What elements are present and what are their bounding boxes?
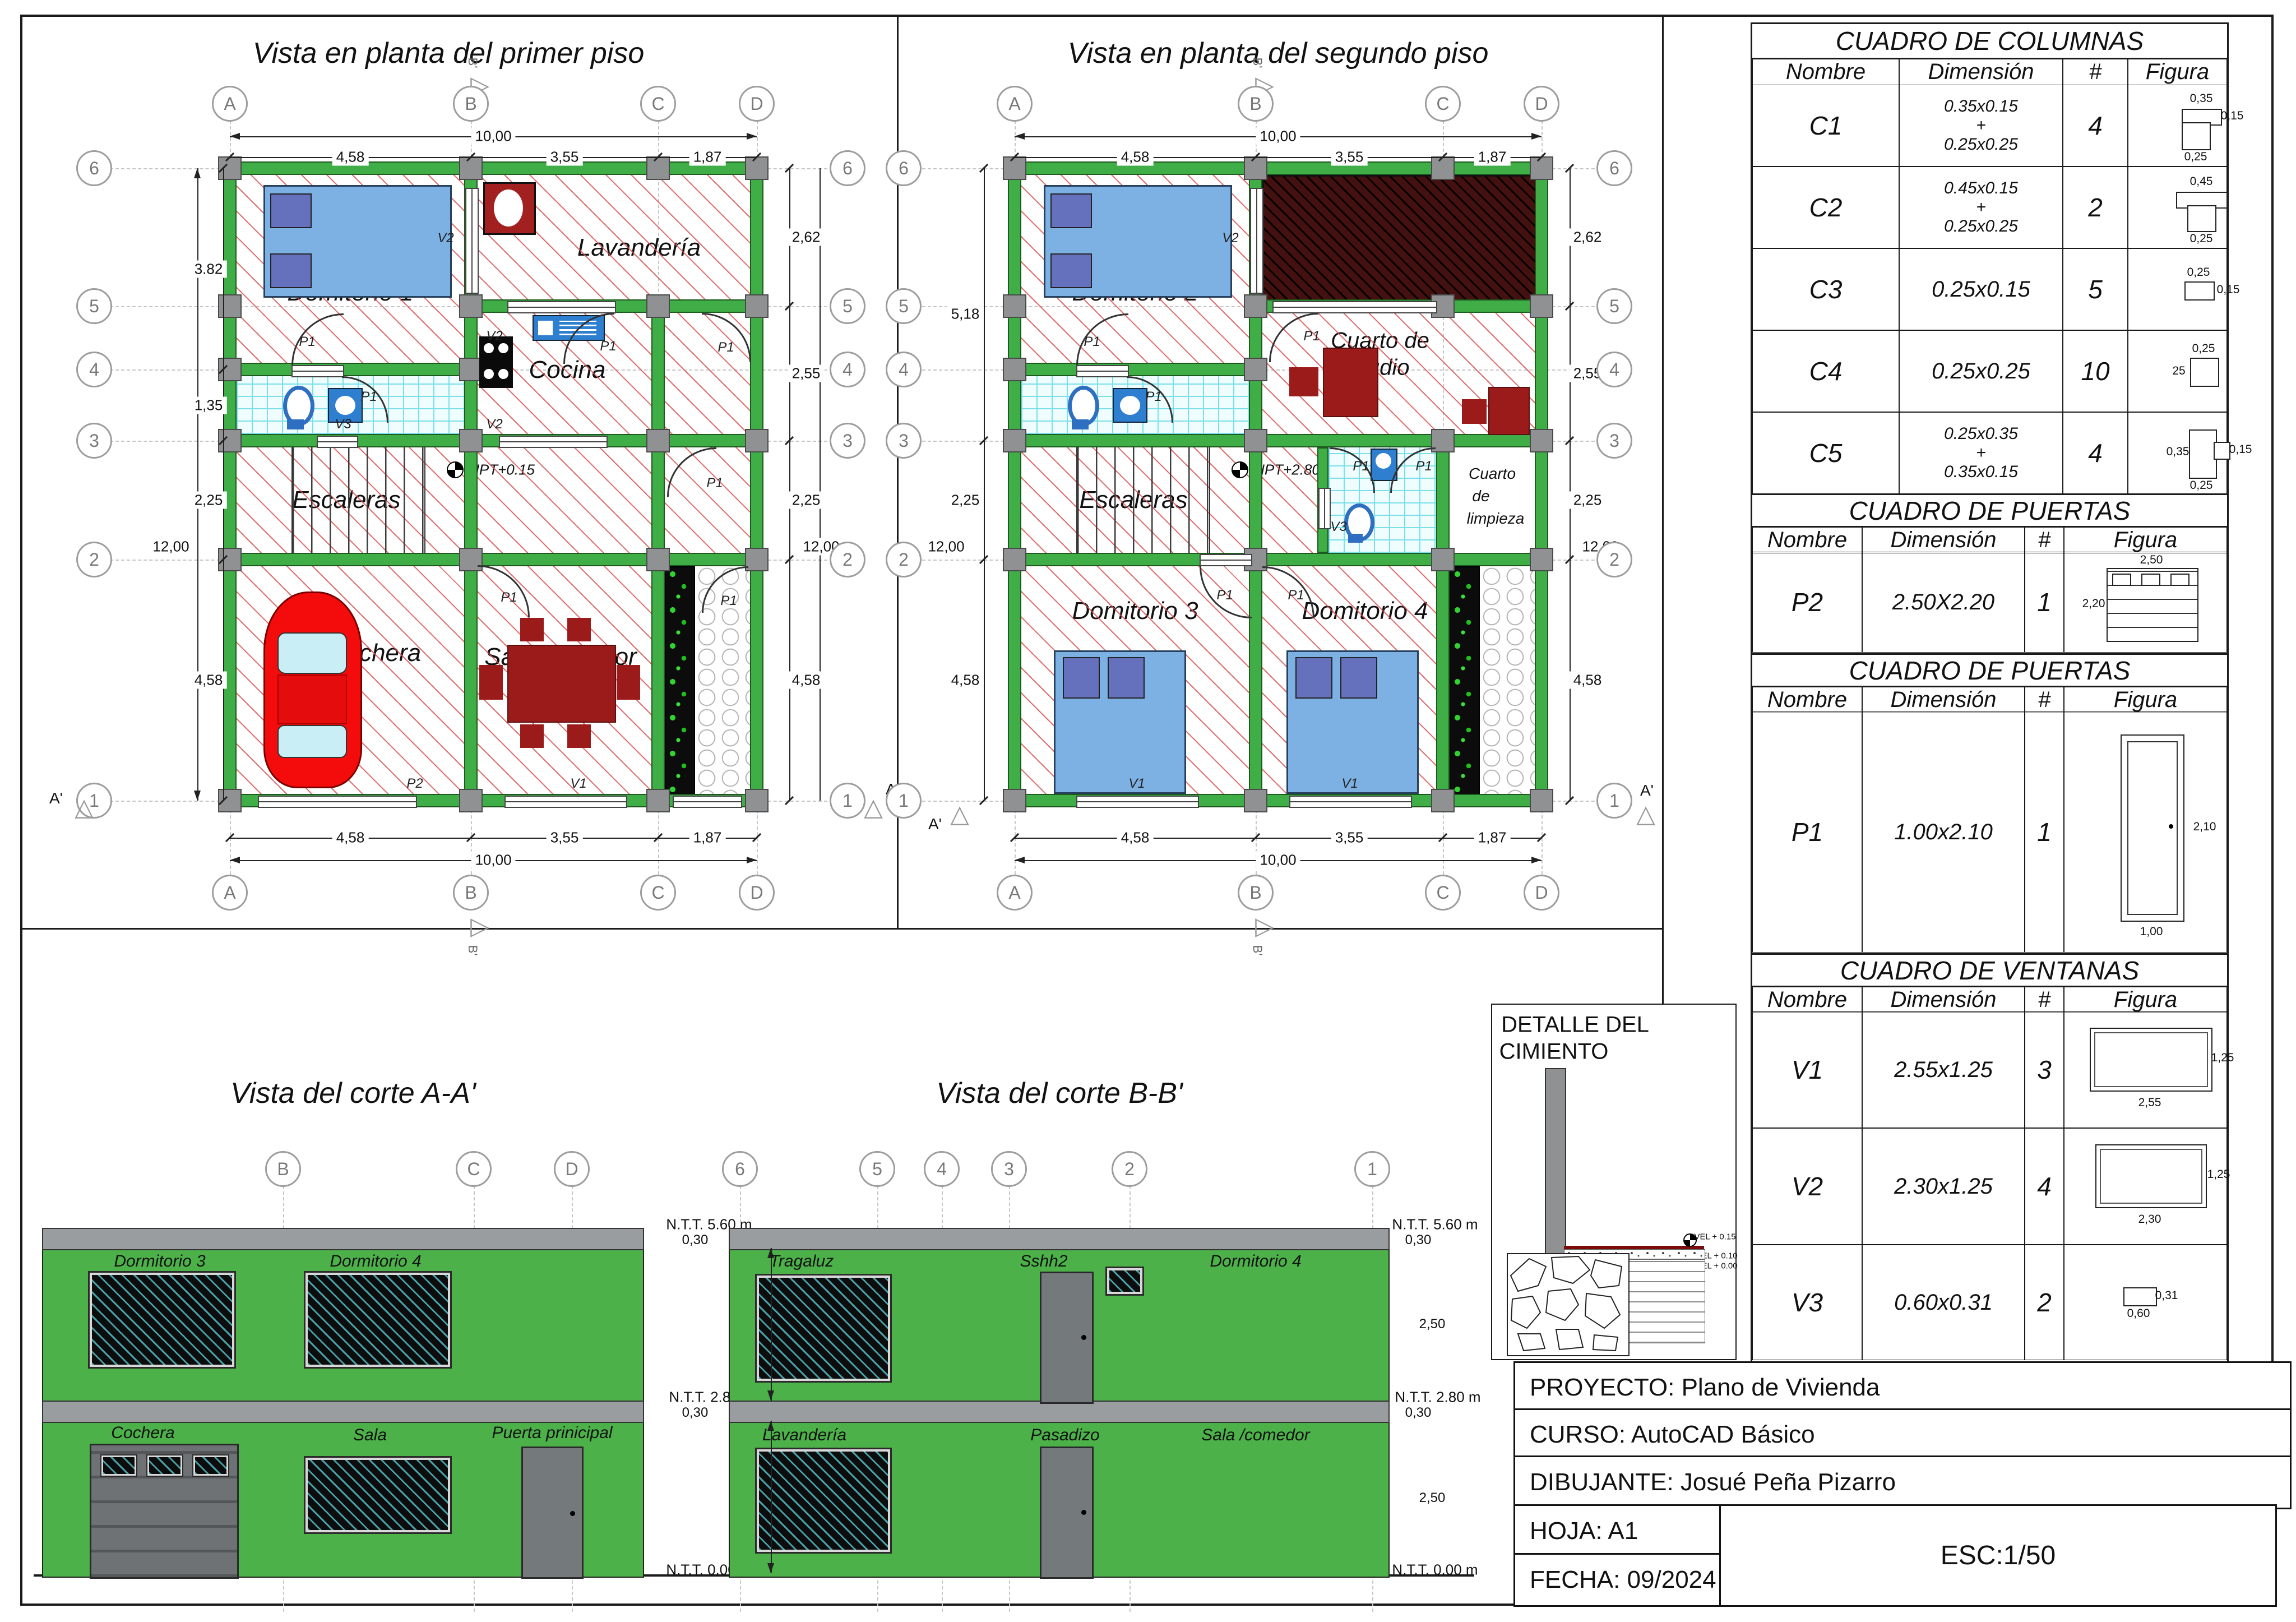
grid-bubble: C (1425, 875, 1461, 911)
grid-bubble: 3 (991, 1151, 1027, 1187)
col-header: Dimensión (1862, 687, 2025, 713)
col-header: Figura (2128, 59, 2227, 85)
planter-strip (1450, 566, 1480, 796)
dim-label: 1,87 (689, 149, 726, 166)
dim-label: 4,58 (788, 672, 825, 689)
tag-p1: P1 (1216, 588, 1233, 603)
fig-dim: 0,35 (2167, 445, 2189, 459)
cell-dim: 0.35x0.15 (1944, 463, 2018, 482)
grid-bubble: B (1238, 875, 1274, 911)
column-figure: 0,45 0,25 (2128, 167, 2226, 248)
dim-label: 12,00 (149, 538, 193, 556)
section-cut-label: A' (49, 789, 63, 807)
section-room-label: Sala /comedor (1201, 1426, 1309, 1445)
col-header: Dimensión (1862, 527, 2025, 553)
dim-label: 2,25 (947, 492, 984, 509)
titleblock-fecha: FECHA: 09/2024 (1513, 1553, 1739, 1607)
cell-plus: + (1976, 116, 1986, 135)
cell-name: V3 (1752, 1245, 1862, 1360)
window-v1 (504, 796, 627, 808)
chair (617, 665, 640, 700)
grid-bubble: 6 (830, 150, 865, 186)
section-cut-label: B' (465, 945, 480, 956)
grid-bubble: A (212, 86, 248, 122)
grid-bubble: C (640, 86, 676, 122)
tag-p1: P1 (1303, 329, 1320, 344)
dim-label: 1,87 (1474, 829, 1511, 847)
col-header: Nombre (1752, 687, 1862, 713)
door-figure: 2,50 2,20 (2064, 552, 2226, 652)
detail-stone-foundation (1507, 1253, 1630, 1356)
grid-bubble: 6 (76, 150, 112, 186)
cell-dim: 0.45x0.15 (1944, 179, 2018, 198)
cell-dim: 2.50X2.20 (1892, 590, 1994, 615)
section-cut-icon: △ (75, 793, 94, 822)
panel-divider-horizontal (22, 928, 1664, 930)
chair (1289, 367, 1318, 396)
tag-p1: P1 (717, 340, 734, 355)
grid-bubble: D (739, 86, 775, 122)
cell-name: C1 (1752, 85, 1899, 167)
col-header: Nombre (1752, 987, 1862, 1013)
level-label: N.T.T. 5.60 m (1392, 1216, 1478, 1233)
dim-label: 2,62 (1570, 229, 1606, 246)
pillow (1340, 657, 1377, 699)
section-cut-icon: △ (950, 800, 969, 829)
fig-dim: 0,45 (2190, 175, 2213, 188)
col-header: Figura (2064, 687, 2227, 713)
cell-dim: 0.25x0.25 (1944, 217, 2018, 236)
titleblock-text: DIBUJANTE: Josué Peña Pizarro (1530, 1468, 1896, 1496)
tag-p1: P1 (706, 475, 723, 491)
cell-dim: 0.35x0.15 (1944, 97, 2018, 116)
detalle-title: CIMIENTO (1499, 1039, 1609, 1065)
grid-bubble: 2 (1112, 1151, 1147, 1187)
tag-p1: P1 (1415, 459, 1432, 474)
chair (567, 618, 591, 641)
chair (1462, 399, 1487, 424)
dim-label: 1,87 (1474, 149, 1511, 166)
car (263, 592, 362, 788)
fig-dim: 0,35 (2190, 92, 2213, 105)
cell-plus: + (1976, 198, 1986, 217)
col-header: # (2025, 527, 2064, 553)
col-header: Figura (2064, 527, 2227, 553)
tag-p1: P1 (1145, 389, 1161, 405)
cell-name: C3 (1752, 248, 1899, 330)
level-label: 2,50 (1419, 1490, 1446, 1506)
dim-label: 4,58 (947, 672, 984, 689)
dim-label: 4,58 (332, 149, 369, 166)
dim-label: 3,55 (1331, 149, 1368, 166)
cell-name: V1 (1752, 1011, 1862, 1128)
room-label: de (1472, 487, 1489, 505)
dim-label: 12,00 (924, 538, 968, 556)
grid-bubble: 4 (924, 1151, 960, 1187)
grid-bubble: 6 (886, 150, 922, 186)
level-label: 0,30 (1405, 1232, 1432, 1248)
fig-dim: 2,50 (2140, 553, 2163, 567)
grid-bubble: B (1238, 86, 1274, 122)
table-columnas: CUADRO DE COLUMNAS Nombre Dimensión # Fi… (1751, 22, 2229, 497)
col-header: # (2025, 687, 2064, 713)
grid-bubble: 1 (1596, 783, 1632, 819)
grid-bubble: A (997, 86, 1033, 122)
cell-plus: + (1976, 443, 1986, 463)
table-title: CUADRO DE COLUMNAS (1752, 24, 2227, 59)
level-marker-icon (1683, 1233, 1697, 1247)
detail-column (1545, 1068, 1566, 1255)
col-header: Nombre (1752, 59, 1899, 85)
dim-label: 10,00 (471, 128, 515, 145)
opening (673, 796, 742, 808)
level-label: 0,30 (1405, 1405, 1432, 1421)
level-label: 2,50 (1419, 1316, 1446, 1332)
toilet-tank (1348, 534, 1363, 543)
cell-dim: 0.25x0.15 (1932, 277, 2030, 302)
window-v3 (1318, 488, 1331, 529)
dim-label: 5,18 (947, 306, 984, 323)
table-ventanas: CUADRO DE VENTANAS Nombre Dimensión # Fi… (1751, 953, 2229, 1363)
tag-v1: V1 (1341, 776, 1358, 792)
titleblock-text: ESC:1/50 (1941, 1540, 2056, 1571)
fig-dim: 0,25 (2184, 150, 2207, 164)
grid-bubble: 5 (1596, 288, 1632, 324)
dim-label: 1,87 (689, 829, 726, 847)
dim-label: 2,55 (788, 365, 825, 382)
grid-bubble: 2 (830, 542, 865, 577)
tag-v3: V3 (335, 417, 351, 432)
pillow (1050, 193, 1092, 228)
door-figure: 2,10 1,00 (2064, 712, 2226, 952)
column-figure: 0,35 0,15 0,25 (2128, 85, 2226, 166)
tag-v2: V2 (486, 329, 502, 344)
pillow (1063, 657, 1100, 699)
cell-count: 4 (2063, 412, 2128, 494)
fig-dim: 2,10 (2193, 820, 2216, 834)
dim-label: 2,25 (788, 492, 825, 509)
window-v3 (317, 436, 358, 448)
grid-bubble: 4 (886, 352, 922, 387)
fig-dim: 1,25 (2207, 1168, 2230, 1181)
section-cut-icon: △ (864, 793, 883, 822)
cell-name: C2 (1752, 167, 1899, 248)
grid-bubble: 6 (722, 1151, 758, 1187)
cell-dim: 0.60x0.31 (1894, 1290, 1993, 1315)
tag-v2: V2 (486, 417, 502, 432)
pillow (1295, 657, 1332, 699)
window-v1 (1289, 796, 1412, 808)
room-label: limpieza (1467, 510, 1525, 528)
fig-dim: 0,25 (2190, 479, 2213, 492)
door-gap (291, 365, 344, 377)
section-window (757, 1276, 890, 1381)
grid-bubble: B (265, 1151, 301, 1187)
tag-p1: P1 (1288, 588, 1304, 603)
cell-dim: 2.30x1.25 (1894, 1174, 1993, 1199)
level-marker-icon (1232, 461, 1248, 478)
garage-door (90, 1444, 239, 1579)
grid-bubble: D (739, 875, 775, 911)
fig-dim: 1,00 (2140, 925, 2163, 939)
titleblock-proyecto: PROYECTO: Plano de Vivienda (1513, 1361, 2292, 1413)
fig-dim: 0,25 (2187, 266, 2210, 279)
section-window (305, 1458, 450, 1532)
column-figure: 0,25 25 (2128, 331, 2226, 412)
tag-p1: P1 (299, 334, 315, 350)
dim-label: 10,00 (471, 852, 515, 869)
grid-bubble: 3 (830, 423, 865, 459)
grid-bubble: 3 (1596, 423, 1632, 459)
cell-name: P2 (1752, 552, 1862, 653)
level-label: N.T.T. 2.80 m (1395, 1389, 1480, 1406)
fig-dim: 0,15 (2221, 109, 2244, 123)
cell-count: 2 (2025, 1245, 2064, 1360)
grid-bubble: 3 (76, 423, 112, 459)
grid-bubble: A (997, 875, 1033, 911)
garage-door-p2 (258, 796, 417, 808)
table-title: CUADRO DE VENTANAS (1752, 955, 2227, 987)
door-gap (1076, 365, 1129, 377)
section-cut-label: A' (928, 815, 942, 833)
section-room-label: Dormitorio 4 (330, 1252, 421, 1271)
pillow (1050, 253, 1092, 288)
cell-count: 5 (2063, 248, 2128, 330)
section-window (90, 1273, 234, 1367)
toilet-tank (287, 419, 304, 429)
cell-count: 4 (2025, 1128, 2064, 1245)
cell-name: V2 (1752, 1128, 1862, 1245)
dim-label: 2,62 (788, 229, 825, 246)
tag-v1: V1 (570, 776, 586, 792)
column-figure: 0,25 0,15 (2128, 249, 2226, 330)
grid-bubble: 4 (76, 352, 112, 387)
dim-label: 4,58 (1117, 149, 1154, 166)
detail-floor-finish (1564, 1246, 1704, 1249)
planter-strip (665, 566, 695, 796)
col-header: Dimensión (1862, 987, 2025, 1013)
cell-count: 4 (2063, 85, 2128, 167)
dim-label: 2,25 (191, 492, 227, 509)
dining-table (507, 645, 616, 723)
dim-label: 10,00 (1256, 128, 1300, 145)
grid-bubble: C (640, 875, 676, 911)
dim-label: 3,55 (547, 149, 583, 166)
cell-count: 3 (2025, 1011, 2064, 1128)
cell-count: 1 (2025, 711, 2064, 953)
col-header: # (2063, 59, 2128, 85)
section-room-label: Lavandería (762, 1426, 846, 1445)
grid-bubble: 5 (886, 288, 922, 324)
section-room-label: Tragaluz (770, 1252, 834, 1271)
grid-bubble: B (453, 86, 489, 122)
detalle-title: DETALLE DEL (1501, 1013, 1649, 1038)
fig-dim: 0,25 (2192, 342, 2215, 355)
titleblock-hoja: HOJA: A1 (1513, 1504, 1739, 1558)
grid-bubble: 4 (1596, 352, 1632, 387)
col-header: Dimensión (1899, 59, 2063, 85)
chair (520, 618, 544, 641)
grid-bubble: 1 (886, 783, 922, 819)
grid-bubble: C (456, 1151, 492, 1187)
window-v2 (1250, 188, 1263, 294)
titleblock-dibujante: DIBUJANTE: Josué Peña Pizarro (1513, 1455, 2292, 1509)
cell-dim: 0.25x0.35 (1944, 424, 2018, 443)
tag-v3: V3 (1330, 519, 1346, 535)
section-cut-icon: △ (1636, 800, 1655, 829)
col-header: Figura (2064, 987, 2227, 1013)
fig-dim: 2,30 (2138, 1213, 2161, 1226)
grid-bubble: 5 (859, 1151, 895, 1187)
cell-dim: 2.55x1.25 (1894, 1057, 1993, 1083)
level-marker-icon (447, 461, 464, 478)
section-room-label: Puerta prinicipal (492, 1424, 612, 1443)
plan2-title: Vista en planta del segundo piso (1068, 36, 1489, 70)
dim-label: 4,58 (1117, 829, 1154, 847)
drawing-sheet: Vista en planta del primer piso ▷ B' ▷ B… (0, 0, 2296, 1622)
grid-bubble: B (453, 875, 489, 911)
section-door (1040, 1272, 1094, 1404)
corteA-title: Vista del corte A-A' (230, 1076, 476, 1110)
window-v1 (1076, 796, 1199, 808)
titleblock-curso: CURSO: AutoCAD Básico (1513, 1408, 2292, 1461)
level-label: 0,30 (682, 1232, 709, 1248)
stairs-treads (1076, 447, 1210, 553)
tragaluz-void (1262, 175, 1538, 303)
dim-label: 3.82 (191, 261, 227, 278)
window-v2 (499, 436, 608, 448)
room-comedor-hall (478, 447, 651, 553)
fig-dim: 0,60 (2127, 1307, 2150, 1320)
titleblock-text: CURSO: AutoCAD Básico (1530, 1421, 1815, 1449)
window-figure: 0,31 0,60 (2064, 1245, 2226, 1360)
door-gap (1200, 554, 1252, 566)
grid-bubble: 2 (886, 542, 922, 577)
section-window (757, 1449, 890, 1552)
toilet-tank (1072, 419, 1089, 429)
section-room-label: Sala (353, 1426, 387, 1445)
section-room-label: Pasadizo (1030, 1426, 1099, 1445)
grid-bubble: 5 (76, 288, 112, 324)
cell-dim: 0.25x0.25 (1944, 135, 2018, 154)
corteB-title: Vista del corte B-B' (936, 1076, 1183, 1110)
window-figure: 1,25 2,30 (2064, 1129, 2226, 1244)
section-cut-label: B' (1250, 58, 1265, 68)
fig-dim: 2,55 (2138, 1096, 2161, 1110)
level-label: 0,30 (682, 1405, 709, 1421)
tag-p1: P1 (360, 389, 377, 405)
pillow (1108, 657, 1145, 699)
window-v2 (465, 188, 479, 294)
hall-strip (1262, 447, 1317, 553)
section-door (521, 1447, 584, 1579)
grid-bubble: D (1524, 86, 1559, 122)
window-figure: 1,25 2,55 (2064, 1012, 2226, 1127)
grid-bubble: 5 (830, 288, 865, 324)
tag-p1: P1 (1353, 459, 1369, 474)
section-room-label: Dormitorio 4 (1210, 1252, 1301, 1271)
washer (483, 182, 536, 235)
section-window-small (1107, 1268, 1142, 1294)
dim-label: 10,00 (1256, 852, 1300, 869)
fig-dim: 0,31 (2155, 1289, 2178, 1302)
desk (1488, 387, 1530, 435)
tag-v1: V1 (1128, 776, 1145, 792)
dim-label: 1,35 (191, 397, 227, 414)
plan1-title: Vista en planta del primer piso (253, 36, 645, 70)
table-puertas-p2: CUADRO DE PUERTAS Nombre Dimensión # Fig… (1751, 493, 2229, 657)
section-door (1040, 1447, 1094, 1579)
table-title: CUADRO DE PUERTAS (1752, 495, 2227, 527)
titleblock-text: FECHA: 09/2024 (1530, 1566, 1716, 1594)
section-cut-icon: ▷ (1255, 912, 1274, 941)
window-v2 (507, 301, 616, 313)
cell-name: C4 (1752, 330, 1899, 412)
tag-p1: P1 (501, 590, 517, 606)
grid-bubble: 6 (1596, 150, 1632, 186)
cell-dim: 1.00x2.10 (1894, 820, 1993, 845)
fig-dim: 0,15 (2217, 283, 2240, 297)
dim-label: 4,58 (1570, 672, 1606, 689)
section-cut-label: B' (1250, 945, 1265, 956)
dim-label: 2,25 (1570, 492, 1606, 509)
titleblock-text: PROYECTO: Plano de Vivienda (1530, 1374, 1880, 1402)
tag-v2: V2 (1222, 230, 1238, 246)
col-header: # (2025, 987, 2064, 1013)
cell-count: 2 (2063, 167, 2128, 248)
grid-bubble: 3 (886, 423, 922, 459)
cell-dim: 0.25x0.25 (1932, 359, 2030, 384)
chair (479, 665, 503, 700)
tag-p1: P1 (720, 593, 737, 609)
cell-count: 10 (2063, 330, 2128, 412)
section-room-label: Sshh2 (1020, 1252, 1067, 1271)
titleblock-text: HOJA: A1 (1530, 1517, 1638, 1545)
fig-dim: 25 (2172, 364, 2185, 378)
pillow (270, 193, 312, 228)
fig-dim: 0,25 (2190, 232, 2213, 246)
panel-divider-vertical-2 (1662, 17, 1664, 1005)
section-cut-label: A' (1640, 782, 1654, 800)
chair (567, 724, 591, 748)
column-figure: 0,35 0,15 0,25 (2128, 413, 2226, 493)
chair (520, 724, 544, 748)
fig-dim: 2,20 (2082, 597, 2105, 611)
desk (1323, 348, 1378, 417)
grid-bubble: 4 (830, 352, 865, 387)
fig-dim: 0,15 (2229, 443, 2252, 456)
pillow (270, 253, 312, 288)
col-header: Nombre (1752, 527, 1862, 553)
section-cut-label: B' (465, 58, 480, 68)
stairs-treads (291, 447, 425, 553)
table-puertas-p1: CUADRO DE PUERTAS Nombre Dimensión # Fig… (1751, 653, 2229, 956)
dim-label: 4,58 (191, 672, 227, 689)
grid-bubble: 1 (830, 783, 865, 819)
table-title: CUADRO DE PUERTAS (1752, 655, 2227, 687)
tag-p1: P1 (600, 339, 616, 354)
tag-p1: P1 (1084, 334, 1100, 350)
dim-label: 3,55 (1331, 829, 1368, 847)
room-pasadizo2 (1480, 566, 1535, 794)
fig-dim: 1,25 (2211, 1051, 2234, 1065)
window-band (1272, 301, 1437, 313)
grid-bubble: C (1425, 86, 1461, 122)
level-label: N.T.T. 0.00 m (1392, 1561, 1478, 1579)
section-cut-icon: ▷ (470, 912, 489, 941)
section-window (305, 1273, 450, 1367)
cell-name: C5 (1752, 412, 1899, 494)
